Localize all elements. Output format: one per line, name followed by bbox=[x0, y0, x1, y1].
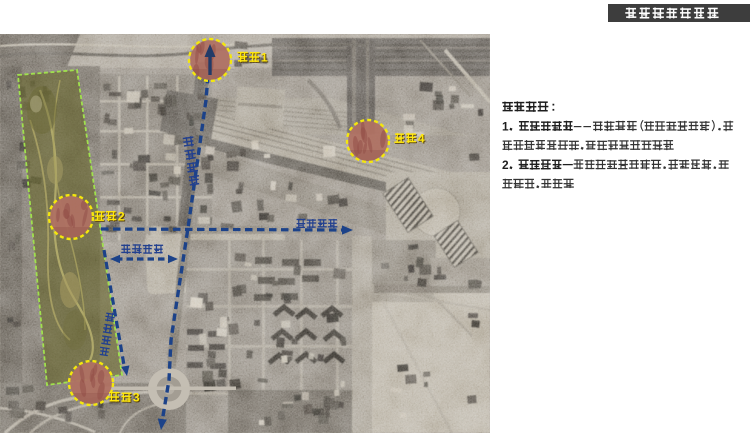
svg-text:4: 4 bbox=[418, 131, 425, 145]
svg-text:2: 2 bbox=[118, 209, 125, 223]
svg-text:2: 2 bbox=[502, 158, 509, 172]
svg-text:1: 1 bbox=[502, 120, 509, 134]
svg-text:1: 1 bbox=[261, 50, 268, 64]
svg-text:3: 3 bbox=[133, 390, 140, 404]
